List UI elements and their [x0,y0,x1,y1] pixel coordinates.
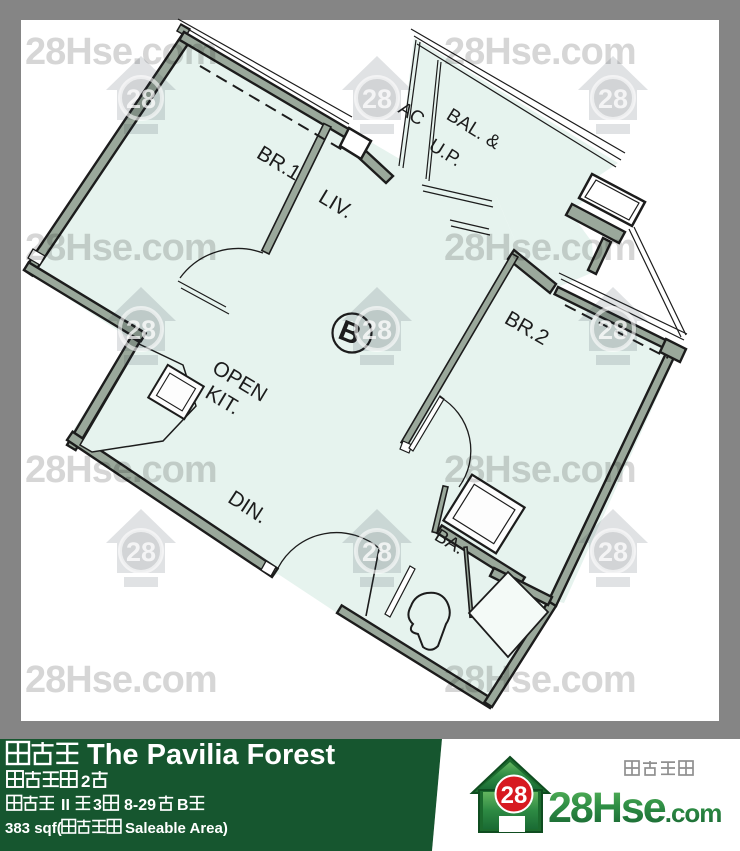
svg-text:28Hse.com: 28Hse.com [444,659,636,701]
svg-text:3: 3 [93,797,102,814]
svg-text:B: B [177,797,189,814]
svg-text:The Pavilia Forest: The Pavilia Forest [87,739,336,771]
svg-text:28Hse.com: 28Hse.com [444,227,636,269]
svg-text:Saleable Area): Saleable Area) [125,820,228,837]
svg-text:2: 2 [81,772,90,791]
svg-text:28: 28 [501,782,528,809]
svg-text:II: II [61,797,70,814]
svg-text:28Hse.com: 28Hse.com [25,449,217,491]
svg-text:28Hse.com: 28Hse.com [25,31,217,73]
svg-text:28Hse.com: 28Hse.com [25,659,217,701]
svg-text:28Hse.com: 28Hse.com [25,227,217,269]
svg-text:8-29: 8-29 [124,797,156,814]
svg-text:28Hse.com: 28Hse.com [444,449,636,491]
svg-text:383 sqf(: 383 sqf( [5,820,62,837]
